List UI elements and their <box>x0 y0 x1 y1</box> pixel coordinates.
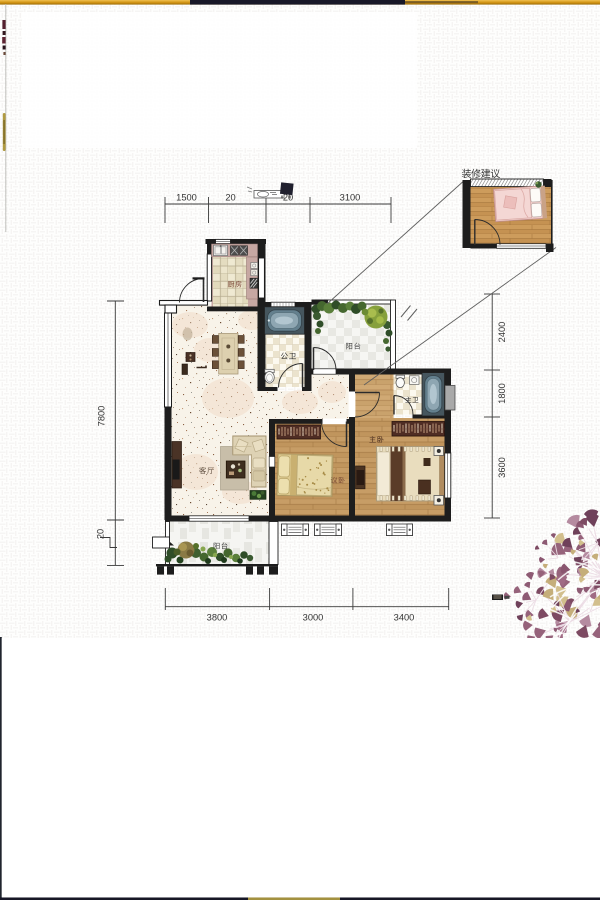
svg-text:3800: 3800 <box>207 613 228 623</box>
svg-text:2400: 2400 <box>497 322 507 343</box>
svg-text:20: 20 <box>225 193 235 203</box>
svg-text:3400: 3400 <box>394 613 415 623</box>
svg-text:3100: 3100 <box>340 193 361 203</box>
svg-text:7800: 7800 <box>97 406 107 427</box>
svg-text:3600: 3600 <box>497 457 507 478</box>
svg-text:1800: 1800 <box>497 383 507 404</box>
svg-text:3000: 3000 <box>303 613 324 623</box>
svg-text:1500: 1500 <box>176 193 197 203</box>
